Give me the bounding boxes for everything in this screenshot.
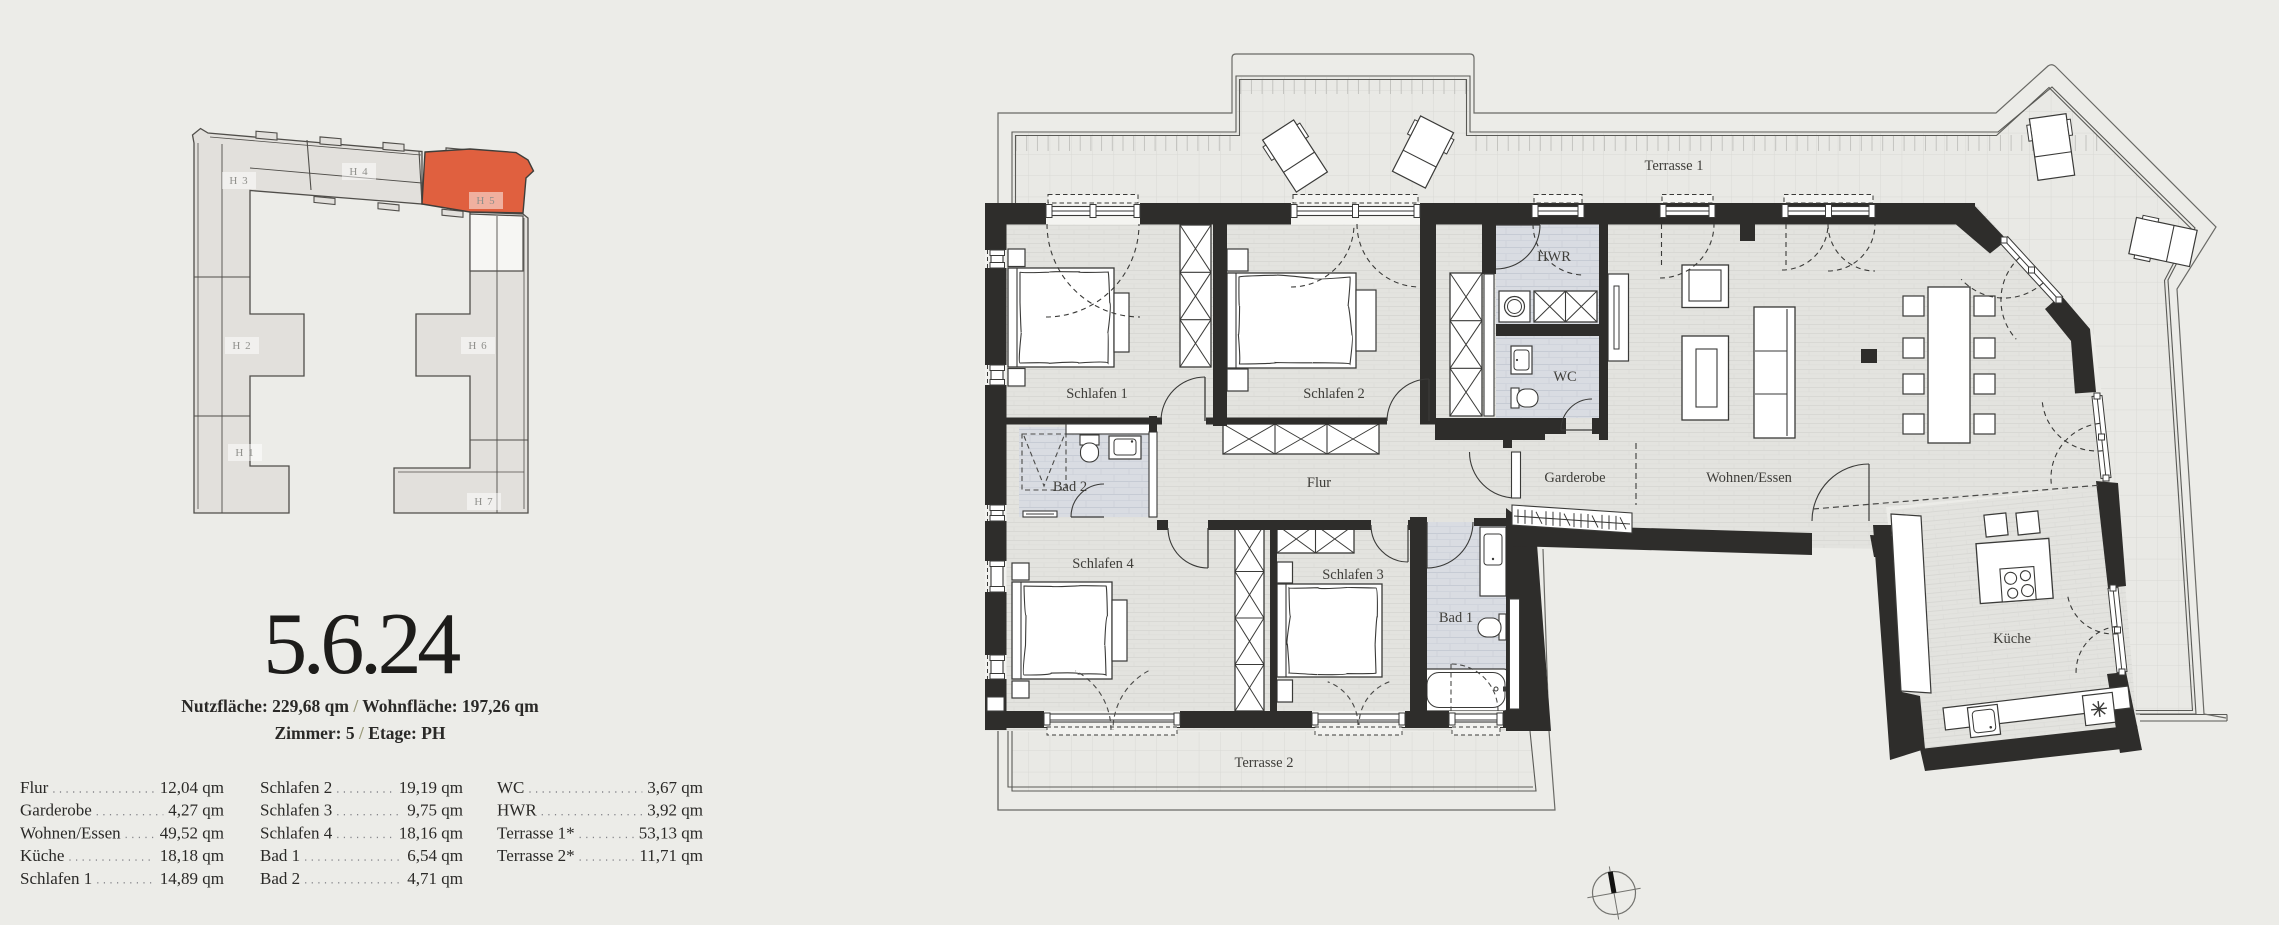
svg-text:Schlafen 4: Schlafen 4 xyxy=(1072,556,1134,572)
svg-text:Flur: Flur xyxy=(1307,475,1331,491)
svg-text:H 6: H 6 xyxy=(468,340,487,352)
svg-text:H 3: H 3 xyxy=(229,175,248,187)
svg-text:Küche: Küche xyxy=(1993,631,2031,647)
svg-text:18,18 qm: 18,18 qm xyxy=(160,846,224,865)
svg-text:6,54 qm: 6,54 qm xyxy=(407,846,463,865)
svg-text:53,13 qm: 53,13 qm xyxy=(639,823,703,842)
svg-text:Bad 2: Bad 2 xyxy=(260,869,300,888)
svg-text:4,71 qm: 4,71 qm xyxy=(407,869,463,888)
svg-text:Schlafen 4: Schlafen 4 xyxy=(260,823,333,842)
svg-text:12,04 qm: 12,04 qm xyxy=(160,778,224,797)
svg-text:WC: WC xyxy=(497,778,524,797)
svg-text:Schlafen 2: Schlafen 2 xyxy=(260,778,332,797)
svg-text:Garderobe: Garderobe xyxy=(1544,470,1605,486)
svg-text:Garderobe: Garderobe xyxy=(20,801,92,820)
svg-text:Schlafen 3: Schlafen 3 xyxy=(260,801,332,820)
svg-text:Bad 1: Bad 1 xyxy=(1439,610,1473,626)
svg-text:3,67 qm: 3,67 qm xyxy=(647,778,703,797)
svg-text:3,92 qm: 3,92 qm xyxy=(647,801,703,820)
svg-text:H 5: H 5 xyxy=(476,195,495,207)
svg-text:Terrasse 1*: Terrasse 1* xyxy=(497,823,575,842)
svg-text:Wohnen/Essen: Wohnen/Essen xyxy=(1706,470,1793,486)
svg-text:19,19 qm: 19,19 qm xyxy=(399,778,463,797)
svg-text:H 1: H 1 xyxy=(235,447,254,459)
svg-text:5.6.24: 5.6.24 xyxy=(263,596,460,693)
svg-text:Zimmer: 5 / Etage: PH: Zimmer: 5 / Etage: PH xyxy=(274,723,445,743)
svg-text:Terrasse 2*: Terrasse 2* xyxy=(497,846,575,865)
svg-text:Bad 2: Bad 2 xyxy=(1053,479,1087,495)
svg-text:Wohnen/Essen: Wohnen/Essen xyxy=(20,823,121,842)
svg-text:Küche: Küche xyxy=(20,846,64,865)
svg-text:HWR: HWR xyxy=(497,801,537,820)
svg-text:WC: WC xyxy=(1553,369,1576,385)
svg-text:H 7: H 7 xyxy=(474,496,493,508)
svg-text:Nutzfläche: 229,68 qm / Wohnfl: Nutzfläche: 229,68 qm / Wohnfläche: 197,… xyxy=(181,696,539,716)
svg-text:Schlafen 1: Schlafen 1 xyxy=(20,869,92,888)
svg-text:H 2: H 2 xyxy=(232,340,251,352)
svg-text:Terrasse 1: Terrasse 1 xyxy=(1645,158,1704,174)
svg-text:9,75 qm: 9,75 qm xyxy=(407,801,463,820)
svg-text:Schlafen 3: Schlafen 3 xyxy=(1322,567,1384,583)
svg-text:11,71 qm: 11,71 qm xyxy=(639,846,703,865)
svg-text:H 4: H 4 xyxy=(349,166,368,178)
svg-text:Schlafen 1: Schlafen 1 xyxy=(1066,386,1128,402)
svg-text:4,27 qm: 4,27 qm xyxy=(168,801,224,820)
svg-text:14,89 qm: 14,89 qm xyxy=(160,869,224,888)
svg-text:Flur: Flur xyxy=(20,778,49,797)
svg-text:18,16 qm: 18,16 qm xyxy=(399,823,463,842)
svg-text:Terrasse 2: Terrasse 2 xyxy=(1235,755,1294,771)
svg-text:49,52 qm: 49,52 qm xyxy=(160,823,224,842)
svg-text:Schlafen 2: Schlafen 2 xyxy=(1303,386,1365,402)
svg-text:HWR: HWR xyxy=(1537,249,1571,265)
svg-text:Bad 1: Bad 1 xyxy=(260,846,300,865)
